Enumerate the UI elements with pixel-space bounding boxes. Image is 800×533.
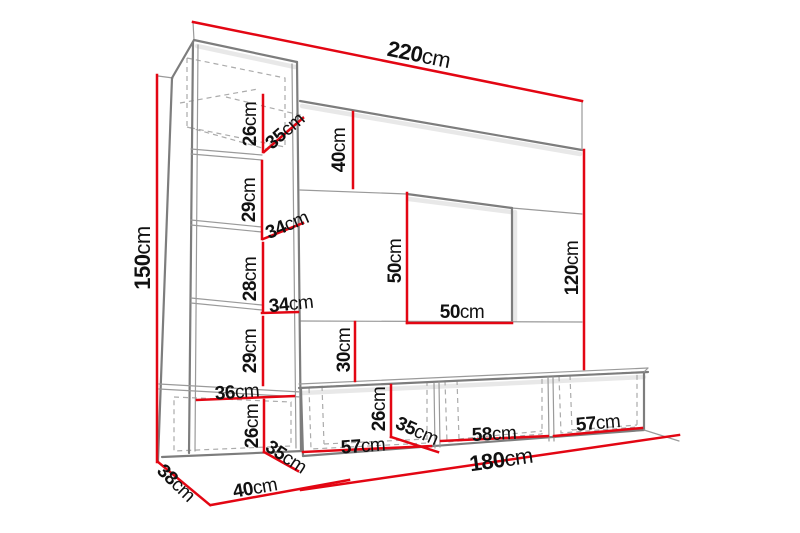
dim-label-shelf-gap-middle: 28cm (240, 257, 261, 301)
column-top-edge (194, 40, 297, 62)
dim-label-stand-section-left: 57cm (340, 434, 386, 458)
stand-divider-right (548, 377, 549, 441)
dim-label-stand-total-width: 180cm (468, 442, 534, 476)
wall-unit-drawing: 220cm 150cm 26cm 35cm 40cm 29cm 34cm 28c… (0, 0, 800, 533)
dim-label-niche-height: 50cm (385, 239, 406, 283)
dim-label-base-height: 26cm (242, 404, 263, 448)
dim-label-gap-panel-stand: 30cm (334, 328, 355, 372)
dim-label-niche-width: 50cm (440, 302, 484, 323)
dim-label-stand-section-right: 57cm (575, 411, 621, 436)
dim-label-top-cabinet-height: 26cm (240, 102, 261, 146)
dim-label-panel-top-section: 40cm (329, 128, 350, 172)
dim-label-stand-section-middle: 58cm (471, 422, 517, 445)
column-left-side-edge (158, 78, 172, 461)
dim-label-column-floor-depth: 38cm (153, 460, 200, 506)
dim-label-column-floor-width: 40cm (231, 474, 278, 502)
furniture-dimension-diagram: 220cm 150cm 26cm 35cm 40cm 29cm 34cm 28c… (0, 0, 800, 533)
dim-line-total-width (193, 22, 582, 101)
dim-label-base-inner-width: 36cm (214, 380, 260, 404)
dim-label-shelf-gap-upper: 29cm (239, 178, 260, 222)
dim-label-shelf-gap-lower: 29cm (240, 329, 261, 373)
dim-label-shelf-depth-lower: 34cm (268, 291, 314, 317)
dim-label-stand-height: 26cm (369, 387, 390, 431)
dim-label-left-height: 150cm (130, 226, 155, 290)
dim-label-shelf-depth-upper: 34cm (262, 207, 311, 244)
dim-label-right-height: 120cm (562, 241, 583, 296)
